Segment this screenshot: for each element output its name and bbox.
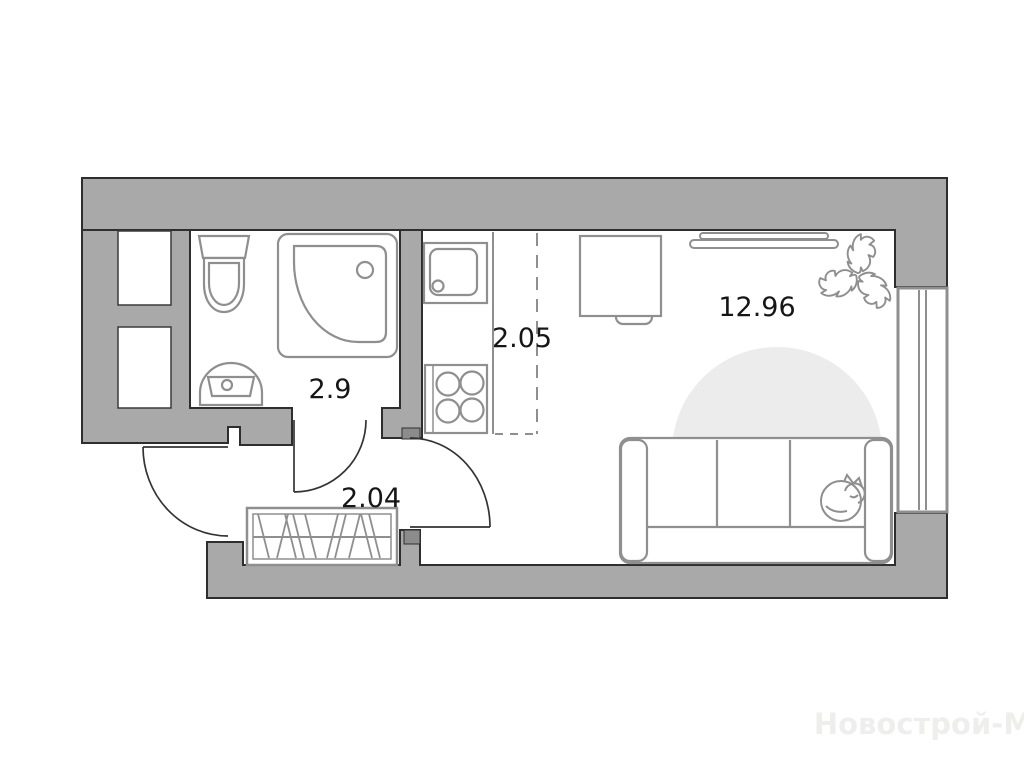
stove-icon xyxy=(425,365,487,433)
wall-left xyxy=(82,230,292,445)
developer-watermark: Новострой-М xyxy=(814,707,1024,741)
hallway-area-label: 2.04 xyxy=(341,483,401,514)
vent-shaft xyxy=(118,327,171,408)
toilet-icon xyxy=(199,236,249,312)
floor-plan: 2.9 2.05 12.96 2.04 Новострой-М xyxy=(0,0,1024,768)
bathroom-door-icon xyxy=(294,420,366,492)
desk-group xyxy=(580,236,661,324)
room-door-icon xyxy=(410,438,490,527)
vent-shaft xyxy=(118,231,171,305)
living-room-area-label: 12.96 xyxy=(718,292,795,323)
sofa-icon xyxy=(620,438,892,563)
wardrobe-icon xyxy=(247,508,397,565)
window-icon xyxy=(898,288,947,512)
floor-plan-canvas: 2.9 2.05 12.96 2.04 Новострой-М xyxy=(0,0,1024,768)
kitchen-area-label: 2.05 xyxy=(492,323,552,354)
washbasin-icon xyxy=(200,363,262,405)
entrance-door-icon xyxy=(143,447,228,536)
corner-shower-icon xyxy=(278,234,397,357)
bathroom-area-label: 2.9 xyxy=(309,374,352,405)
kitchen-sink-icon xyxy=(424,243,487,303)
bathroom-fixtures xyxy=(199,234,397,405)
desk-icon xyxy=(580,236,661,316)
tv-icon xyxy=(690,233,838,248)
